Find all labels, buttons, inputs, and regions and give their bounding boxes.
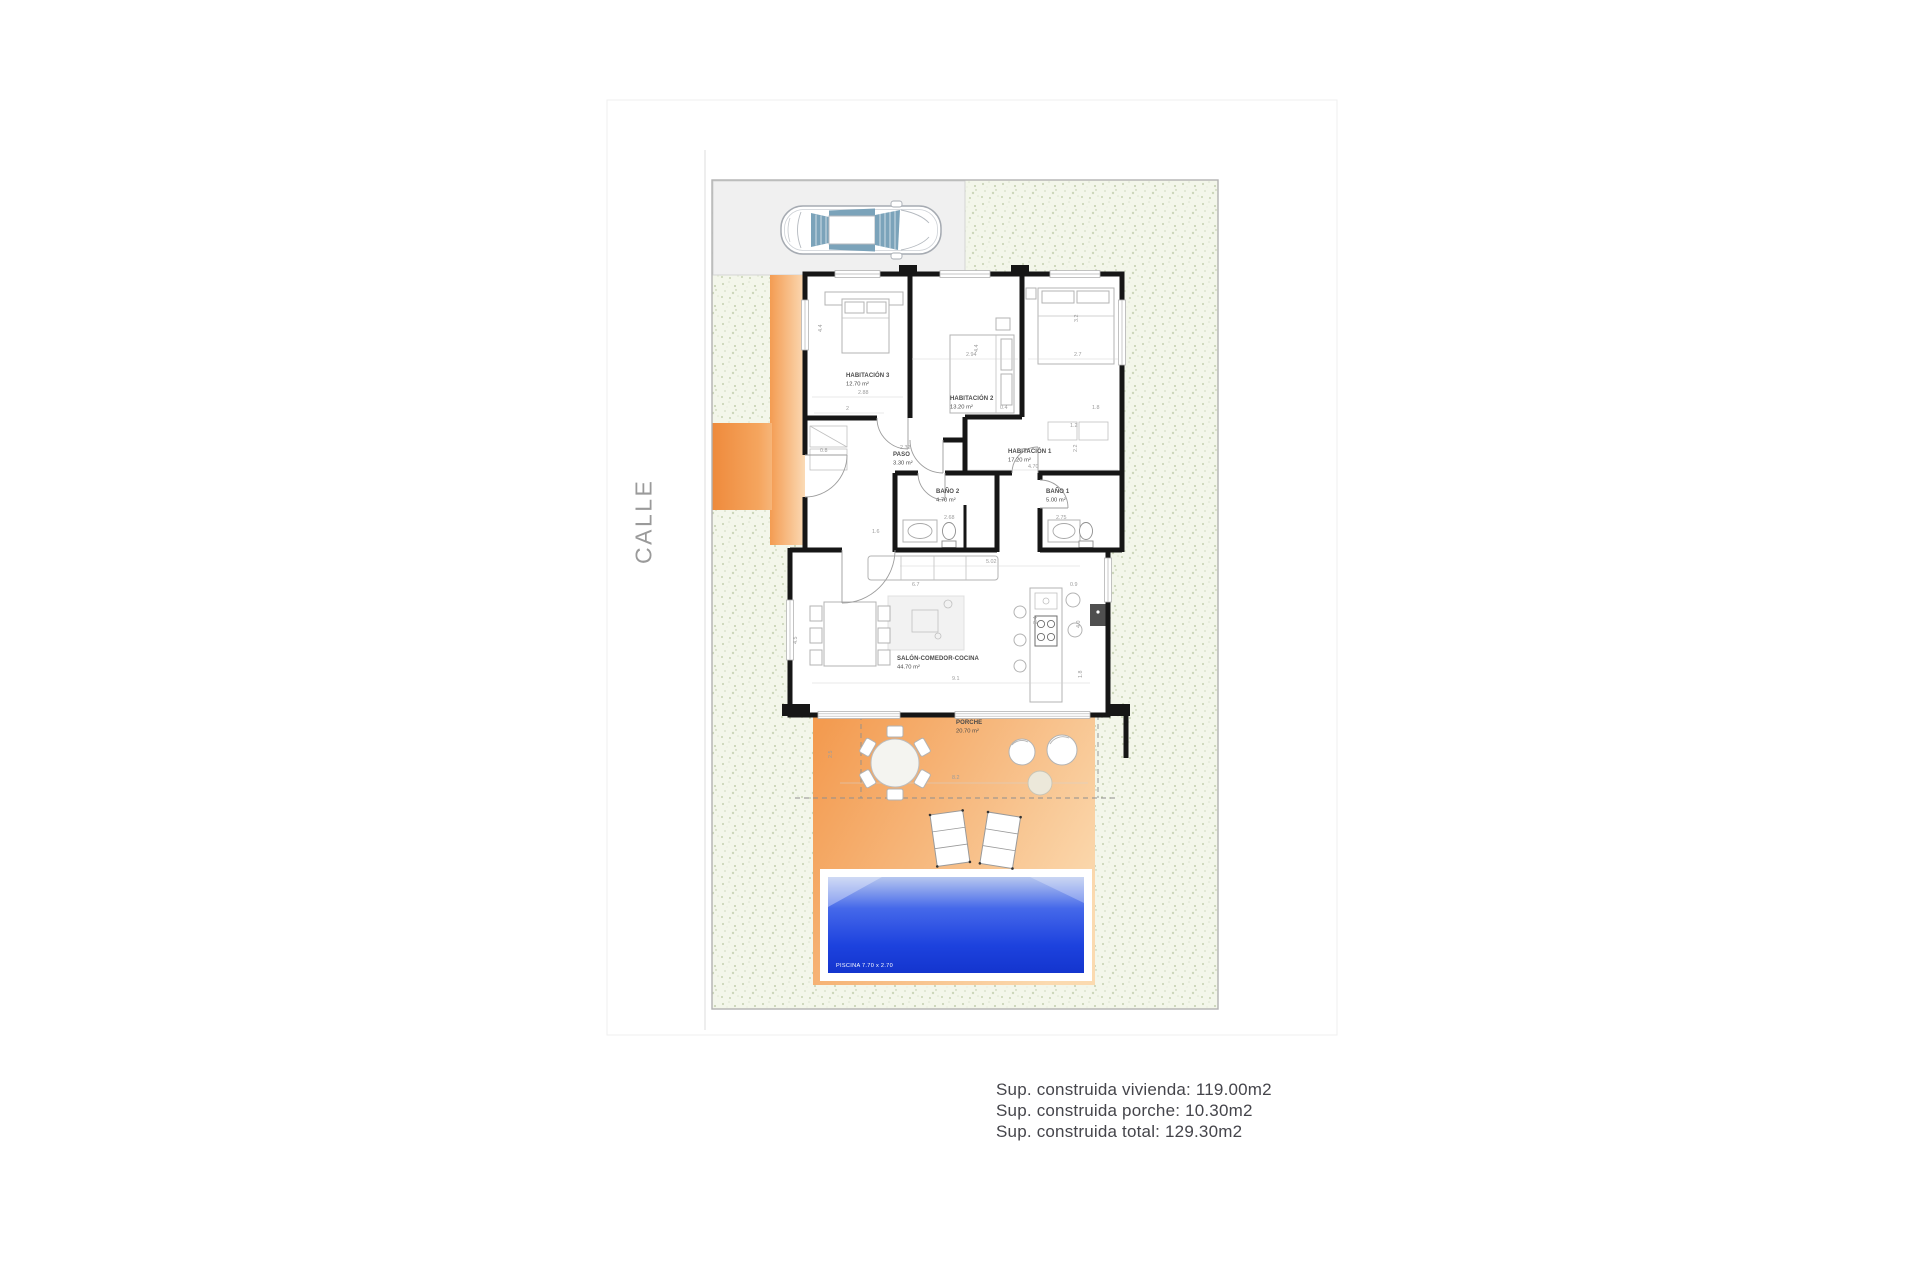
dim-label-18: 6.7 <box>912 582 920 588</box>
room-area-habitacion-1: 17.20 m² <box>1008 458 1031 464</box>
dim-label-23: 9.1 <box>952 676 960 682</box>
room-label-habitacion-1: HABITACIÓN 1 <box>1008 447 1052 455</box>
dim-label-9: 0.4 <box>1000 405 1008 411</box>
room-area-porche: 20.70 m² <box>956 729 979 735</box>
room-label-bano-2: BAÑO 2 <box>936 488 960 495</box>
dim-label-20: 2.4 <box>1033 617 1039 625</box>
room-label-salon: SALÓN-COMEDOR-COCINA <box>897 654 980 662</box>
dim-label-14: 2.68 <box>944 515 955 521</box>
room-area-bano-2: 4.70 m² <box>936 498 956 504</box>
room-label-habitacion-2: HABITACIÓN 2 <box>950 394 994 402</box>
dim-label-11: 1.2 <box>1070 423 1078 429</box>
street-name-label: CALLE <box>622 462 666 580</box>
dim-label-15: 2.75 <box>1056 515 1067 521</box>
dim-label-6: 2 <box>846 406 849 412</box>
dim-label-16: 1.6 <box>872 529 880 535</box>
pool-label: PISCINA 7.70 x 2.70 <box>836 963 893 969</box>
room-label-paso: PASO <box>893 452 910 458</box>
floor-plan-drawing: PISCINA 7.70 x 2.70 <box>0 0 1920 1280</box>
dim-label-8: 2.32 <box>900 445 911 451</box>
room-label-habitacion-3: HABITACIÓN 3 <box>846 371 890 379</box>
room-area-bano-1: 5.00 m² <box>1046 498 1066 504</box>
parked-car-icon <box>781 201 941 259</box>
dim-label-1: 2.7 <box>1074 352 1082 358</box>
room-area-habitacion-3: 12.70 m² <box>846 382 869 388</box>
dim-label-2: 4.4 <box>818 325 824 333</box>
dim-label-12: 2.2 <box>1073 445 1079 453</box>
dim-label-3: 4.4 <box>974 345 980 353</box>
floor-plan-page: PISCINA 7.70 x 2.70 <box>0 0 1920 1280</box>
dim-label-7: 0.8 <box>820 448 828 454</box>
room-label-bano-1: BAÑO 1 <box>1046 488 1070 495</box>
swimming-pool: PISCINA 7.70 x 2.70 <box>820 869 1092 981</box>
dim-label-10: 1.8 <box>1092 405 1100 411</box>
dim-label-5: 2.88 <box>858 390 869 396</box>
summary-line-porche: Sup. construida porche: 10.30m2 <box>996 1100 1272 1121</box>
room-label-porche: PORCHE <box>956 720 982 726</box>
dim-label-24: 1.8 <box>1078 671 1084 679</box>
dim-label-19: 0.9 <box>1070 582 1078 588</box>
dim-label-21: 4.0 <box>1076 621 1082 629</box>
dim-label-13: 4.70 <box>1028 464 1039 470</box>
built-area-summary: Sup. construida vivienda: 119.00m2 Sup. … <box>996 1079 1272 1142</box>
room-area-salon: 44.70 m² <box>897 665 920 671</box>
room-area-paso: 3.30 m² <box>893 461 913 467</box>
dim-label-17: 5.02 <box>986 559 997 565</box>
dim-label-22: 4.5 <box>793 637 799 645</box>
dim-label-25: 2.5 <box>828 751 834 759</box>
room-area-habitacion-2: 13.20 m² <box>950 405 973 411</box>
dim-label-26: 8.2 <box>952 775 960 781</box>
dim-label-4: 3.2 <box>1074 315 1080 323</box>
summary-line-vivienda: Sup. construida vivienda: 119.00m2 <box>996 1079 1272 1100</box>
summary-line-total: Sup. construida total: 129.30m2 <box>996 1121 1272 1142</box>
